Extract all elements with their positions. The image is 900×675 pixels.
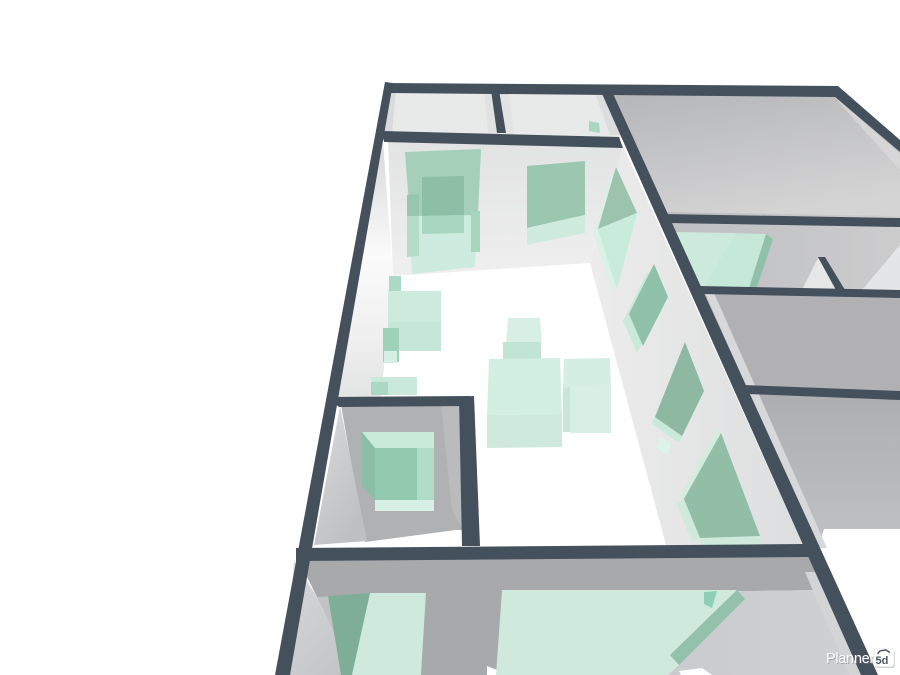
svg-text:5d: 5d <box>876 655 889 667</box>
svg-text:Planner: Planner <box>826 651 874 667</box>
